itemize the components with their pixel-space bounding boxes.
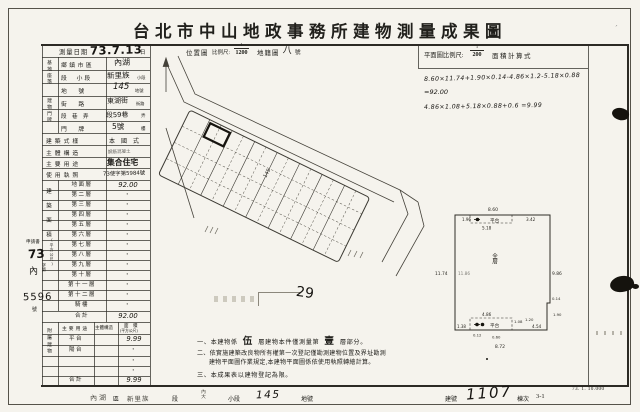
dim-notch-b: 1.90 [553,312,562,317]
floor-row-label: 第五層 [58,220,106,230]
survey-date-suffix: 日 [140,48,146,56]
license-label: 使用執照 [46,170,81,179]
floor-row-value: ・ [106,200,150,210]
footer-section-suffix: 段 [172,394,178,403]
floor-row-label: 第六層 [58,230,106,240]
dim-left: 11.74 [435,271,448,277]
dim-bottom-right: 4.54 [532,324,542,329]
plan-center-label: 全層 [491,252,498,266]
footer-parcel-suffix: 地號 [301,394,313,403]
floor-row-value: ・ [106,250,150,260]
floor-area-group-unit: (平方公尺) [50,238,55,296]
street-suffix: 街路 [136,101,144,107]
dim-b1: 0.12 [473,333,482,338]
note-1-floors: 伍 [238,337,259,347]
note-1-text-b: 層建物本件僅測量第 [258,339,319,346]
house-number-suffix: 樓 [141,126,146,132]
application-suffix: 號 [32,306,37,313]
floor-plan: 8.60 1.96 平台 3.42 5.18 11.74 11.86 9.86 … [430,195,605,370]
license-value: 73使字第5984號 [103,168,145,177]
district-value: 內湖 [114,57,130,69]
lane-value: 段59巷 [106,109,128,119]
road-line [396,202,424,276]
subject-parcel-outline [204,123,230,146]
dim-top-left: 1.96 [462,217,471,222]
footer-subsection: 內大 [200,389,205,402]
floor-row-label: 第七層 [58,240,106,250]
floor-row-value: ・ [106,300,150,311]
cadastral-block [158,110,369,262]
floor-row-label: 第四層 [58,210,106,220]
road-line [166,62,394,202]
street-label: 街 路 [61,99,84,108]
annex-row-value: 9.99 [118,334,150,345]
note-2-line-2: 建物平面圖作業規定,本建物平面圖係依使用執照轉繪計算。 [209,357,375,366]
floor-row-value: ・ [106,190,150,200]
section-label: 段 小段 [61,73,92,82]
floor-row-label: 地面層 [58,180,106,190]
floor-row-label: 合計 [58,311,106,322]
floor-row-value: ・ [106,220,150,230]
parcel-value: 145 [113,82,129,92]
floor-row-value: ・ [106,290,150,300]
dim-top-right: 3.42 [526,217,536,222]
footer-subsection-suffix: 小段 [228,394,240,403]
annex-row-value: ・ [118,366,150,376]
address-group-label: 建物門牌 [45,98,52,132]
floor-row-label: 第十二層 [58,290,106,300]
note-1-text-c: 層部分。 [340,339,367,346]
dim-left-inner: 11.86 [458,271,470,276]
map-parcel-number: 145 [262,168,272,179]
stamp-bracket [258,292,259,306]
dim-bottom: 8.72 [495,344,505,350]
table-bottom-rule [41,385,629,387]
annex-structure-header: 主體構造 [95,325,113,331]
footer-district: 內湖 [90,393,108,404]
handwritten-note-number: 29 [295,284,315,302]
note-1: 一、本建物係伍層建物本件僅測量第壹層部分。 [197,333,367,347]
annex-row-label [58,366,94,376]
area-formula-label: 面積計算式 [492,50,532,60]
table-right-rule [627,44,629,385]
note-1-text-a: 一、本建物係 [197,339,238,346]
annex-row-label [58,356,94,366]
lane-label: 段 巷 弄 [61,112,89,120]
pointer-arrows [474,218,484,326]
annex-row-value: ・ [118,356,150,366]
table-grid-line [94,322,95,385]
parcel-suffix: 地號 [135,88,143,94]
floor-row-label: 騎樓 [58,300,106,311]
building-survey-form: ˊ 台北市中山地政事務所建物測量成果圖 測量日期 73.7.13 日 位置圖 比… [0,0,640,412]
survey-date-value: 73.7.13 [90,42,143,57]
survey-date-label: 測量日期 [59,47,88,56]
table-grid-line [58,57,59,133]
floor-row-label: 第三層 [58,200,106,210]
footer-section: 新里族 [127,393,150,403]
dim-notch-a: 0.14 [552,296,561,301]
road-line [178,56,418,202]
top-platform-label: 平台 [490,217,500,224]
style-value: 本 國 式 [109,136,139,145]
use-value: 集合住宅 [107,157,138,168]
floor-row-label: 第十一層 [58,280,106,290]
floor-row-value: ・ [106,270,150,280]
house-number-value: 5號 [112,121,124,132]
street-value: 東湖街 [107,96,128,107]
stamp-bracket [258,292,300,293]
footer-district-suffix: 區 [113,394,119,403]
page-title: 台北市中山地政事務所建物測量成果圖 [0,18,640,42]
dim-bottom-left: 1.38 [457,324,466,329]
annex-group-label: 附屬建物 [45,328,52,380]
lane-suffix: 弄 [141,113,146,119]
application-code: 內 [29,264,38,277]
floor-row-label: 第九層 [58,260,106,270]
floor-row-value: ・ [106,280,150,290]
annex-row-label: 合計 [58,376,94,385]
annex-row-value: 9.99 [118,376,150,385]
dim-top: 8.60 [488,207,498,213]
site-group-label: 基地座落 [45,60,52,94]
footer-unit: 3-1 [536,393,545,400]
stray-dot [486,358,488,360]
application-year: 73 [28,247,45,262]
plan-scale-den: 200 [470,52,484,58]
road-line [382,190,408,262]
ink-blob [632,284,639,289]
floor-row-value: ・ [106,240,150,250]
note-1-count: 壹 [319,337,340,347]
faded-stamp-strokes [214,296,254,302]
annex-row-value: ・ [118,345,150,356]
dim-platform-top: 5.18 [482,226,492,231]
footer-unit-label: 棟次 [517,394,529,403]
print-run-code: 73. 1. 10.000 [572,386,604,392]
floor-row-value: ・ [106,210,150,220]
section-suffix: 小段 [137,75,145,81]
house-number-label: 門 牌 [61,124,84,133]
annex-row-label: 平台 [58,334,94,345]
footer-parcel: 145 [256,389,281,402]
dim-platform-side: 1.08 [514,319,523,324]
table-grid-line [418,68,588,69]
district-label: 鄉鎮市區 [61,60,94,69]
annex-use-header: 主要用途 [62,325,89,332]
bottom-platform-label: 平台 [490,322,500,329]
application-label: 申請書 [26,239,40,245]
structure-label: 主體構造 [46,148,81,157]
floor-row-value: ・ [106,260,150,270]
plan-scale-num: 1 [470,45,484,50]
structure-value: 鋼筋混凝土 [108,149,131,156]
floor-row-value: ・ [106,230,150,240]
floor-row-label: 第二層 [58,190,106,200]
pencil-dots [596,331,626,335]
parcel-label: 地 號 [61,86,84,95]
pen-squiggle [348,250,363,258]
application-number: 5596 [23,292,53,304]
section-value: 新里族 [107,70,130,82]
dim-gap: 1.20 [525,317,534,322]
footer-building-no: 1107 [465,382,512,403]
note-2-line-1: 二、依實施建築改良物所有權第一次登記僅勘測建物位置及界址勘測 [197,348,386,357]
footer-building-no-label: 建號 [445,394,457,403]
plan-scale-fraction: 1 200 [470,45,484,58]
table-grid-line [42,44,43,385]
formula-line-2: =92.00 [424,88,448,96]
note-3: 三、本成果表以建物登記為限。 [197,370,292,379]
use-label: 主要用途 [46,159,81,168]
dim-b2: 0.60 [492,335,501,340]
floor-row-value: 92.00 [106,180,150,190]
road-line [166,128,194,218]
dim-bottom-platform: 4.86 [482,312,492,317]
floor-row-label: 第八層 [58,250,106,260]
location-scale-num: 1 [234,43,249,48]
style-label: 建築式樣 [46,136,81,145]
table-grid-line [42,133,150,134]
floor-row-value: 92.00 [106,311,150,322]
dim-right: 9.86 [552,271,562,277]
pen-squiggle [205,226,218,234]
table-grid-line [42,145,150,146]
annex-row-label: 陽台 [58,345,94,356]
floor-row-label: 第十層 [58,270,106,280]
